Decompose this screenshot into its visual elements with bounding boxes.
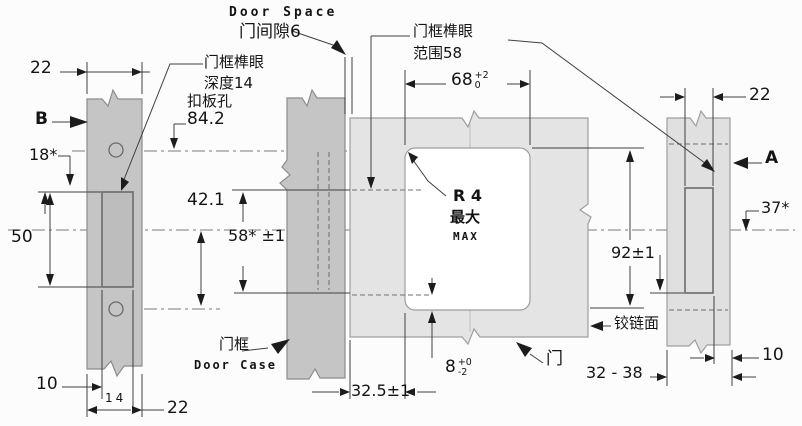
- door-label: 门: [546, 351, 563, 369]
- dim-right-offset: 37*: [761, 200, 789, 217]
- technical-drawing: Door Space 门间隙6 门框榫眼 深度14 扣板孔 84.2 门框榫眼 …: [0, 0, 802, 426]
- frame-mortise-range-line2: 范围58: [413, 46, 462, 62]
- frame-mortise-range-line1: 门框榫眼: [413, 24, 473, 40]
- dim-left-width-bottom: 22: [167, 400, 189, 418]
- radius-line3: MAX: [453, 231, 479, 243]
- dim-left-width-top: 22: [30, 60, 52, 78]
- radius-line2: 最大: [450, 210, 480, 226]
- radius-line1: R 4: [453, 188, 482, 205]
- middle-bar-door-case-section: [280, 90, 345, 379]
- view-a-label: A: [765, 150, 778, 168]
- drawing-canvas: [0, 0, 802, 426]
- dim-right-inset: 10: [762, 347, 784, 365]
- door-gap-label: 门间隙6: [239, 24, 301, 42]
- view-a-arrow: [733, 157, 748, 169]
- dim-panel-height: 92±1: [611, 245, 655, 262]
- dim-panel-range: 32 - 38: [586, 365, 643, 382]
- door-case-label-en: Door Case: [194, 359, 277, 372]
- door-face-panel: [350, 111, 591, 344]
- frame-mortise-depth-line1: 门框榫眼: [204, 55, 264, 71]
- hinge-face-arrow: [590, 321, 603, 331]
- dim-case-mortise: 58* ±1: [228, 228, 285, 245]
- left-bar-door-case: [87, 90, 142, 376]
- dim-case-to-top: 42.1: [187, 192, 225, 210]
- hinge-face-label: 铰链面: [614, 316, 659, 332]
- dim-left-offset: 18*: [29, 147, 57, 164]
- catch-plate-dim: 84.2: [187, 111, 225, 129]
- dim-left-inset: 10: [36, 376, 58, 394]
- dim-panel-depth: 8+0-2: [445, 358, 472, 378]
- catch-plate-label: 扣板孔: [187, 94, 232, 110]
- dim-panel-width: 68+20: [451, 71, 489, 91]
- dim-left-mortise-height: 50: [11, 229, 33, 247]
- dim-case-setback: 32.5±1: [351, 383, 410, 400]
- frame-mortise-depth-line2: 深度14: [204, 76, 253, 92]
- dim-left-mortise-width: 14: [105, 392, 126, 405]
- door-space-leader-arrow: [331, 40, 346, 55]
- right-bar-door-edge: [667, 111, 730, 353]
- dim-right-width-top: 22: [749, 87, 771, 105]
- mortise-window: [405, 148, 530, 310]
- door-case-label-cn: 门框: [219, 337, 249, 353]
- view-b-label: B: [35, 111, 48, 129]
- left-mortise: [102, 192, 133, 287]
- door-space-label-en: Door Space: [229, 6, 337, 20]
- view-b-arrow: [70, 116, 88, 128]
- door-leader-arrow: [516, 342, 532, 357]
